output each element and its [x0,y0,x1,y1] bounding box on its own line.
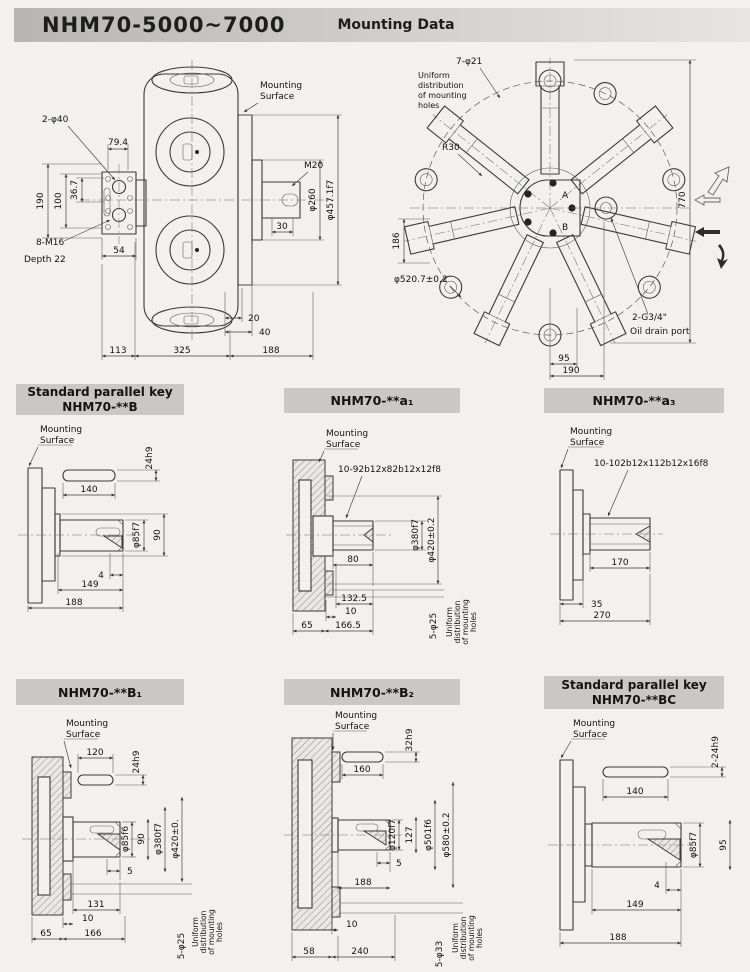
dim-40: 40 [259,328,271,338]
dim-shaft-d: φ85f6 [121,826,131,853]
dim-54: 54 [113,246,125,256]
dim-520: φ520.7±0.2 [394,275,448,285]
radial-cylinder-arm [536,58,564,208]
flange-shaft-outline [28,468,123,603]
title-bar: NHM70-5000~7000 Mounting Data [14,8,750,42]
mounting-surface-label: Surface [573,730,608,740]
flange-shaft-outline [32,757,120,915]
dim-90: 90 [137,833,147,845]
flange-shaft-outline [293,460,373,611]
dim-35: 35 [591,600,602,610]
parallel-key [342,752,383,762]
dim-key-h: 2-24h9 [711,736,721,768]
dim-457: φ457.1f7 [326,180,336,221]
front-view-drawing: A B 7-φ21 Uniform distribution of mounti… [390,48,750,388]
panel-title: Standard parallel key [544,678,724,692]
panel-title: NHM70-**a₁ [284,393,460,408]
dim-10: 10 [345,607,357,617]
mounting-surface-label: Surface [40,436,75,446]
parallel-key [78,775,113,785]
side-view-drawing: 2-φ40 79.4 36.7 100 190 8-M16 Depth 22 5… [16,48,366,383]
mounting-surface-label: Surface [570,438,605,448]
dim-188: 188 [354,878,371,888]
dim-key-len: 160 [353,765,370,775]
dim-65: 65 [40,929,51,939]
dim-flange-d: φ580±0.2 [442,813,452,858]
side-view-dimensions: 2-φ40 79.4 36.7 100 190 8-M16 Depth 22 5… [24,81,342,360]
port-plate [102,172,146,234]
dim-4: 4 [654,881,660,891]
dim-bolts: 8-M16 [36,238,64,248]
panel-title: NHM70-**a₃ [544,393,724,408]
panel-header-a3: NHM70-**a₃ [544,388,724,413]
dim-20: 20 [248,314,260,324]
shaft-drawing-b: Mounting Surface 140 24h9 φ85f7 90 4 149… [10,416,265,666]
dim-188: 188 [65,598,82,608]
dim-spline: 10-92b12x82b12x12f8 [338,465,441,475]
dim-190: 190 [36,192,46,209]
note-uniform: distribution [418,81,464,90]
panel-title: NHM70-**B₂ [284,685,460,700]
dim-65: 65 [301,621,312,631]
dim-190: 190 [562,366,579,376]
dim-131: 131 [87,900,104,910]
dim-188: 188 [609,933,626,943]
dim-thread: M20 [304,161,323,171]
shaft-drawing-bc: Mounting Surface 140 2-24h9 φ85f7 95 4 1… [538,710,750,972]
dim-shaft-d: φ120f7 [388,819,398,851]
mounting-surface-label: Mounting [260,81,302,91]
shaft-drawing-b1: Mounting Surface 120 24h9 φ85f6 90 φ380f… [10,710,265,972]
dim-holes: 5-φ25 [429,613,439,639]
dim-pilot-d: φ501f6 [424,819,434,851]
mounting-surface-label: Surface [326,440,361,450]
panel-header-a1: NHM70-**a₁ [284,388,460,413]
dim-4: 4 [98,571,104,581]
dim-5: 5 [396,859,402,869]
panel-b-dimensions: Mounting Surface 140 24h9 φ85f7 90 4 149… [28,425,168,612]
page-title: NHM70-5000~7000 [42,13,285,37]
page-subtitle: Mounting Data [337,17,454,33]
dim-depth: Depth 22 [24,255,66,265]
dim-mount-holes: 7-φ21 [456,57,482,67]
dim-key-h: 24h9 [132,750,142,773]
dim-270: 270 [593,611,610,621]
panel-title: NHM70-**BC [544,693,724,707]
label-oil-drain-port: Oil drain port [630,327,690,337]
mounting-surface-label: Surface [335,722,370,732]
mounting-surface-label: Mounting [573,719,615,729]
dim-325: 325 [173,346,190,356]
dim-90: 90 [153,529,163,541]
shaft-drawing-a1: Mounting Surface 10-92b12x82b12x12f8 80 … [278,416,528,671]
dim-5: 5 [127,867,133,877]
panel-header-b: Standard parallel key NHM70-**B [16,384,184,415]
panel-title: NHM70-**B₁ [16,685,184,700]
mounting-surface-label: Surface [260,92,295,102]
panel-header-b1: NHM70-**B₁ [16,679,184,705]
dim-spline: 10-102b12x112b12x16f8 [594,459,709,469]
dim-key-h: 32h9 [405,728,415,751]
front-view-dimensions: 7-φ21 Uniform distribution of mounting h… [392,57,696,380]
dim-10: 10 [346,920,358,930]
dim-260: φ260 [308,188,318,211]
port-a-label: A [562,191,569,201]
note-uniform: holes [418,101,439,110]
mounting-surface-label: Mounting [335,711,377,721]
dim-132-5: 132.5 [341,594,367,604]
mounting-surface-label: Mounting [326,429,368,439]
dim-149: 149 [626,900,643,910]
note-uniform: holes [475,928,484,948]
dim-pilot-d: φ380f7 [154,823,164,855]
dim-36-7: 36.7 [70,180,80,200]
dim-58: 58 [303,947,315,957]
shaft-drawing-b2: Mounting Surface 160 32h9 φ120f7 127 φ50… [278,706,530,972]
mounting-surface-label: Mounting [40,425,82,435]
dim-shaft-d: φ85f7 [689,832,699,858]
dim-188: 188 [262,346,279,356]
dim-key-len: 140 [626,787,643,797]
dim-186: 186 [392,232,402,249]
parallel-key [63,470,115,481]
motor-body-outline [144,67,300,333]
dim-r30: R30 [442,143,460,153]
dim-100: 100 [54,192,64,209]
dim-30: 30 [276,222,288,232]
note-uniform: holes [215,922,224,942]
dim-pilot-holes: 2-φ40 [42,115,69,125]
dim-key-len: 120 [86,748,103,758]
panel-title: NHM70-**B [16,400,184,414]
dim-166: 166 [84,929,101,939]
mounting-surface-label: Surface [66,730,101,740]
dim-holes: 5-φ25 [177,933,187,959]
dim-79-4: 79.4 [108,138,128,148]
note-uniform: holes [469,612,478,632]
parallel-key [603,767,668,777]
mounting-surface-label: Mounting [570,427,612,437]
dim-149: 149 [81,580,98,590]
panel-a3-dimensions: Mounting Surface 10-102b12x112b12x16f8 1… [560,427,709,625]
dim-key-h: 24h9 [145,446,155,469]
dim-166-5: 166.5 [335,621,361,631]
mounting-surface-label: Mounting [66,719,108,729]
dim-drain: 2-G3/4" [632,313,667,323]
dim-240: 240 [351,947,368,957]
dim-shaft-d: φ85f7 [132,522,142,548]
dim-flange-d: φ420±0. [171,819,181,858]
dim-127: 127 [405,826,415,843]
note-uniform: Uniform [418,71,450,80]
dim-770: 770 [678,191,688,208]
note-uniform: of mounting [418,91,467,100]
dim-95: 95 [719,839,729,850]
flange-shaft-outline [560,470,650,600]
flange-shaft-outline [292,738,390,930]
dim-pilot-d: φ420±0.2 [427,518,437,563]
dim-10: 10 [82,914,94,924]
dim-key-len: 140 [80,485,97,495]
port-b-label: B [562,223,568,233]
dim-170: 170 [611,558,628,568]
dim-shaft-d: φ380f7 [411,519,421,551]
panel-header-b2: NHM70-**B₂ [284,679,460,705]
dim-95: 95 [558,354,569,364]
dim-113: 113 [109,346,126,356]
panel-header-bc: Standard parallel key NHM70-**BC [544,676,724,709]
rotation-direction-arrows [695,167,729,269]
shaft-drawing-a3: Mounting Surface 10-102b12x112b12x16f8 1… [538,416,750,666]
dim-holes: 5-φ33 [435,941,445,967]
panel-title: Standard parallel key [16,385,184,399]
dim-80: 80 [347,555,359,565]
